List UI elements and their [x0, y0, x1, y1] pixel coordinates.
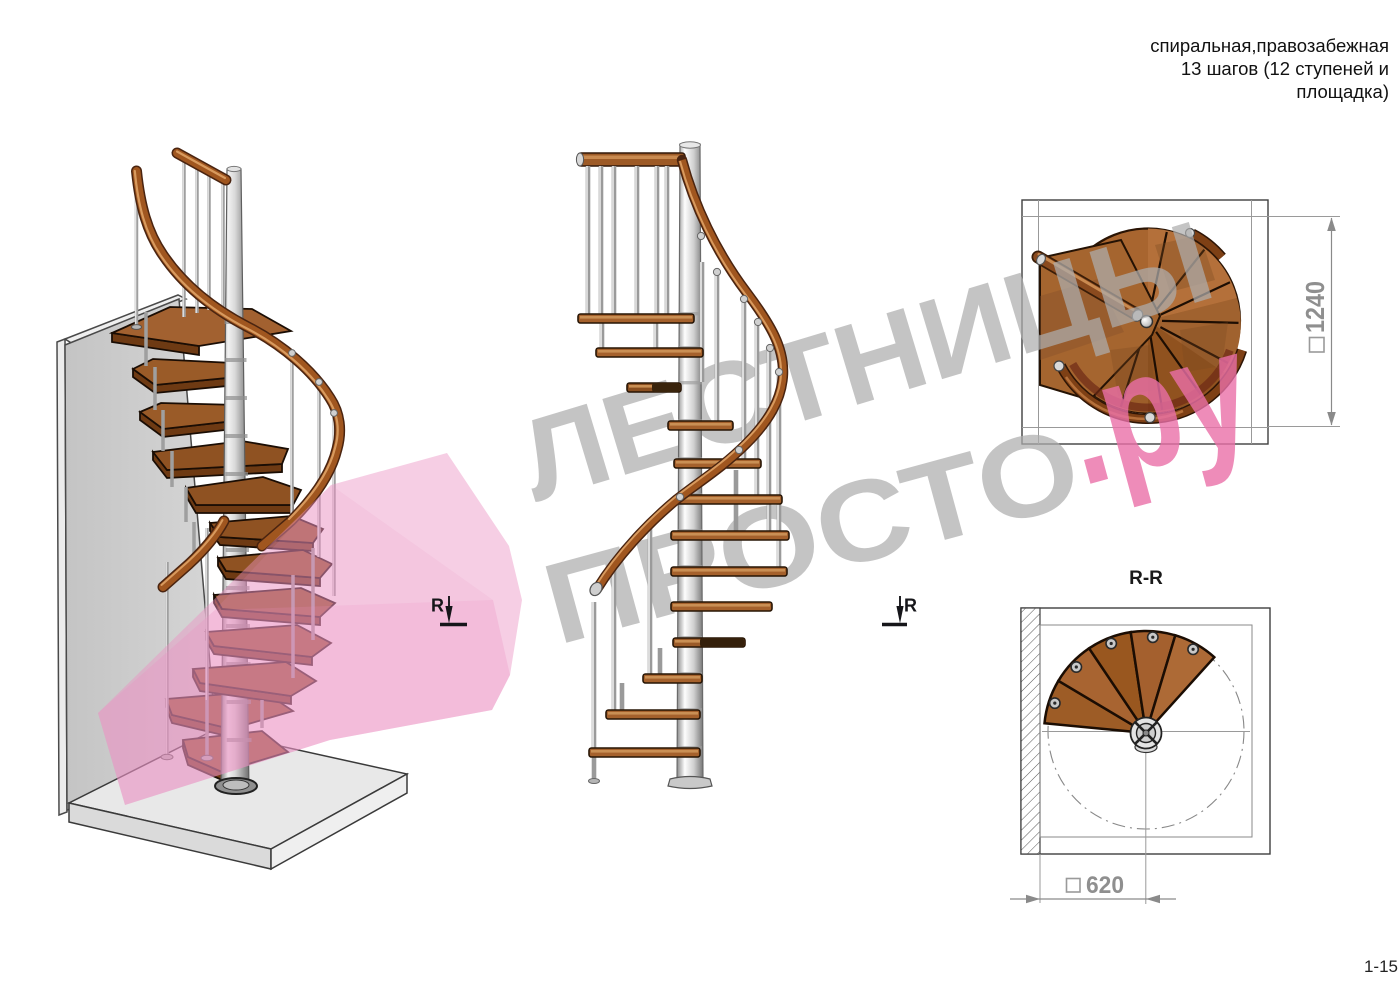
svg-text:R: R: [431, 596, 444, 616]
svg-text:площадка): площадка): [1296, 81, 1389, 102]
svg-text:1-15: 1-15: [1364, 957, 1398, 976]
svg-text:спиральная,правозабежная: спиральная,правозабежная: [1150, 35, 1389, 56]
svg-text:1240: 1240: [1300, 281, 1330, 333]
svg-text:13 шагов (12 ступеней и: 13 шагов (12 ступеней и: [1181, 58, 1389, 79]
svg-text:R-R: R-R: [1129, 568, 1163, 589]
svg-text:620: 620: [1086, 872, 1124, 899]
svg-text:R: R: [904, 596, 917, 616]
